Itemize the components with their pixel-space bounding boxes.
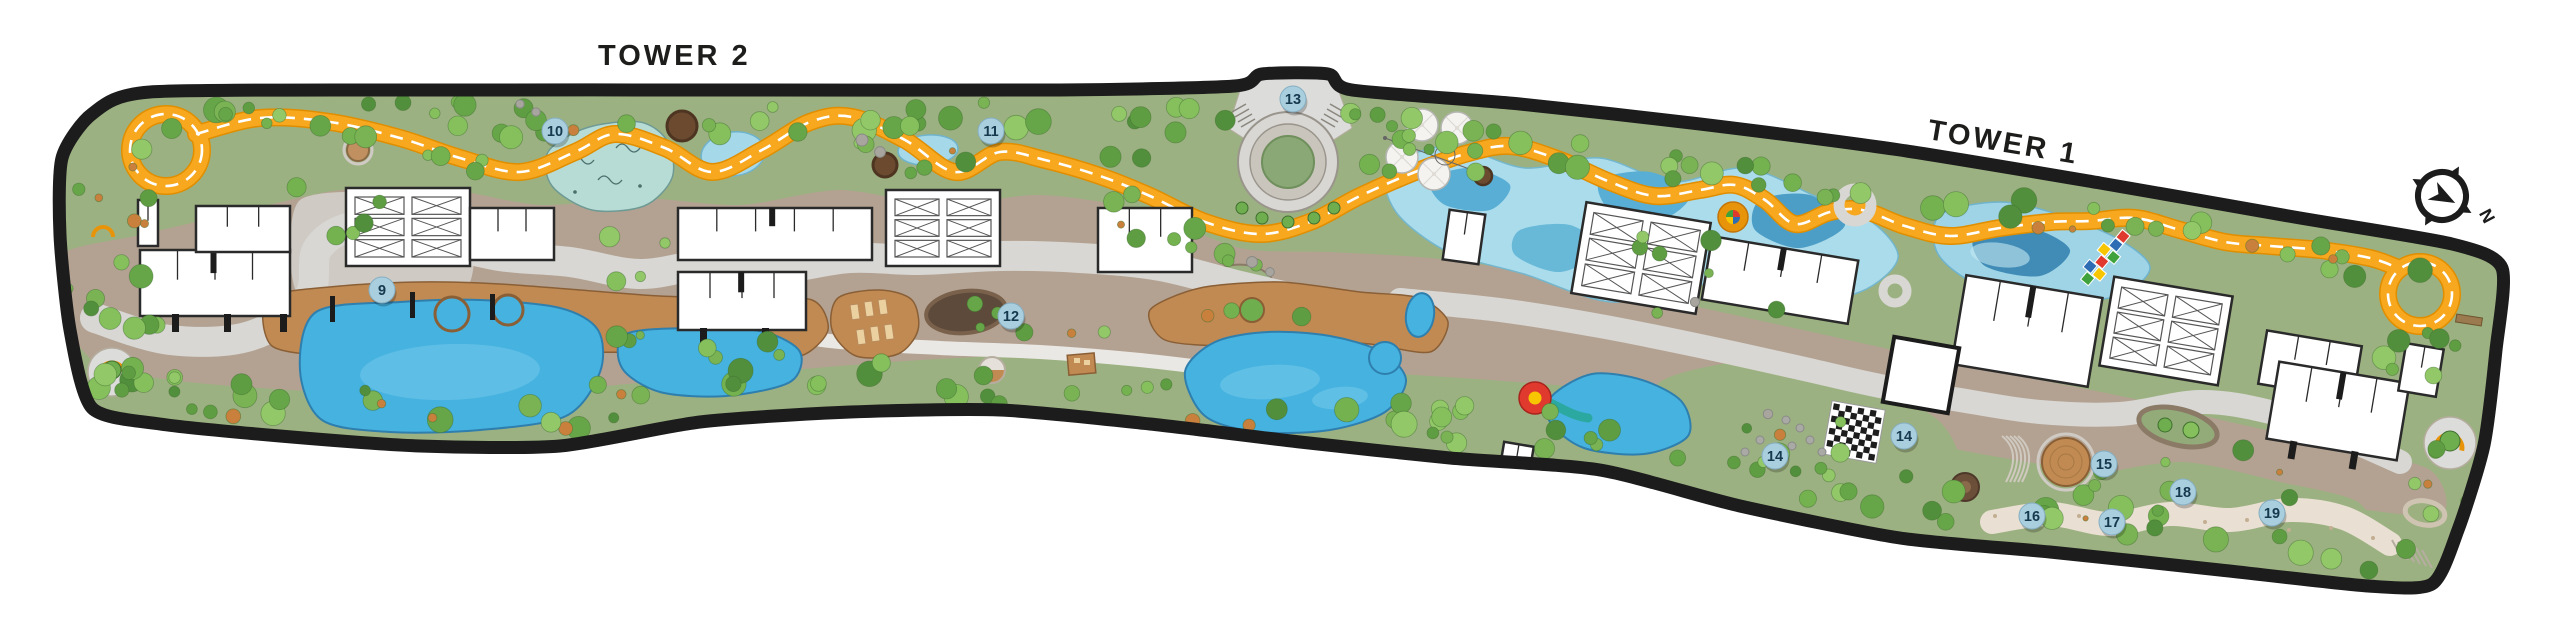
svg-text:18: 18 [2175, 485, 2191, 501]
svg-text:14: 14 [1767, 449, 1783, 465]
spa-pool [493, 295, 523, 325]
svg-text:17: 17 [2104, 515, 2120, 531]
compass-icon [2396, 150, 2489, 243]
svg-text:9: 9 [378, 283, 386, 299]
building-footprint [470, 208, 554, 260]
elevator-core [886, 190, 1000, 266]
building-footprint [196, 206, 290, 252]
resort-site-plan: N91011121314141516171819 TOWER 2 TOWER 1 [0, 0, 2572, 635]
svg-text:15: 15 [2096, 457, 2112, 473]
elevator-core [2099, 277, 2232, 386]
building-footprint [1443, 210, 1486, 265]
yoga-deck [2042, 438, 2090, 486]
svg-text:14: 14 [1896, 429, 1912, 445]
spa-pool [435, 297, 469, 331]
compass-north-label: N [2475, 206, 2499, 227]
svg-text:16: 16 [2024, 509, 2040, 525]
site-plan-artwork: N91011121314141516171819 [0, 0, 2572, 635]
svg-text:12: 12 [1003, 309, 1019, 325]
dome-tent [1418, 158, 1450, 190]
sun-deck [831, 290, 919, 358]
svg-text:11: 11 [983, 124, 998, 140]
svg-text:13: 13 [1285, 92, 1301, 108]
svg-text:19: 19 [2264, 506, 2280, 522]
site-interior [54, 78, 2482, 579]
building-footprint [678, 208, 872, 260]
svg-text:10: 10 [547, 124, 563, 140]
tower-2-label: TOWER 2 [598, 40, 751, 73]
elevator-core [1571, 202, 1710, 314]
pavilion [1883, 337, 1959, 413]
